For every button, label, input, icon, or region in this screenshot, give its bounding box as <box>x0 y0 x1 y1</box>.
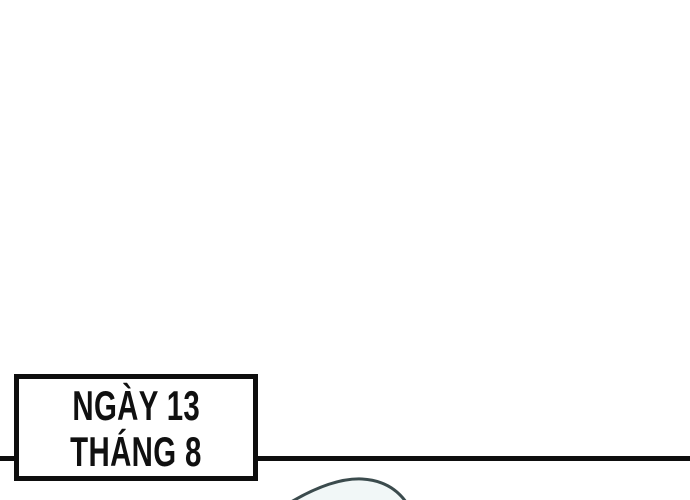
date-caption-box: NGÀY 13 THÁNG 8 <box>14 374 258 481</box>
date-caption-line-2: THÁNG 8 <box>70 429 202 475</box>
date-caption-line-1: NGÀY 13 <box>72 383 200 429</box>
character-head-fill <box>291 479 406 500</box>
webtoon-panel-page: { "panel": { "date_box": { "line1": "NGÀ… <box>0 0 690 500</box>
